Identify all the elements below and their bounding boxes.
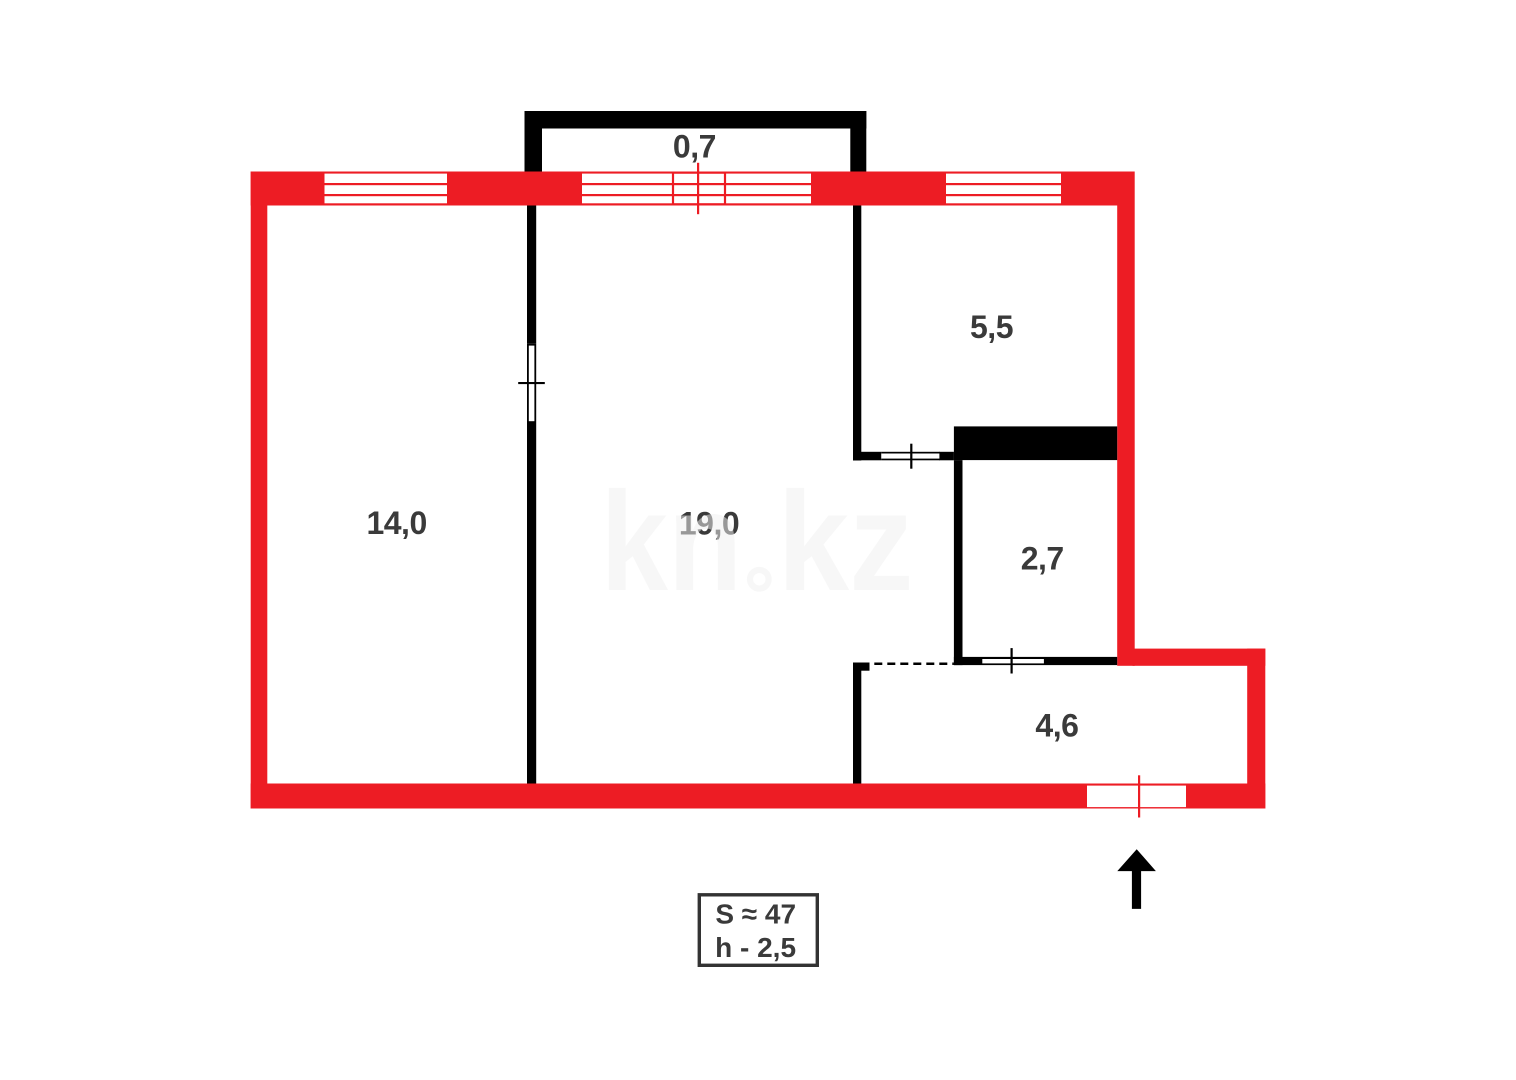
svg-text:kz: kz [777, 462, 913, 620]
svg-text:kn: kn [600, 462, 742, 620]
svg-text:14,0: 14,0 [366, 505, 426, 541]
svg-text:h - 2,5: h - 2,5 [715, 932, 796, 963]
svg-text:0,7: 0,7 [673, 129, 716, 165]
svg-text:S ≈ 47: S ≈ 47 [715, 899, 796, 930]
svg-text:4,6: 4,6 [1035, 708, 1078, 744]
svg-text:2,7: 2,7 [1021, 541, 1064, 577]
svg-text:5,5: 5,5 [970, 309, 1013, 345]
